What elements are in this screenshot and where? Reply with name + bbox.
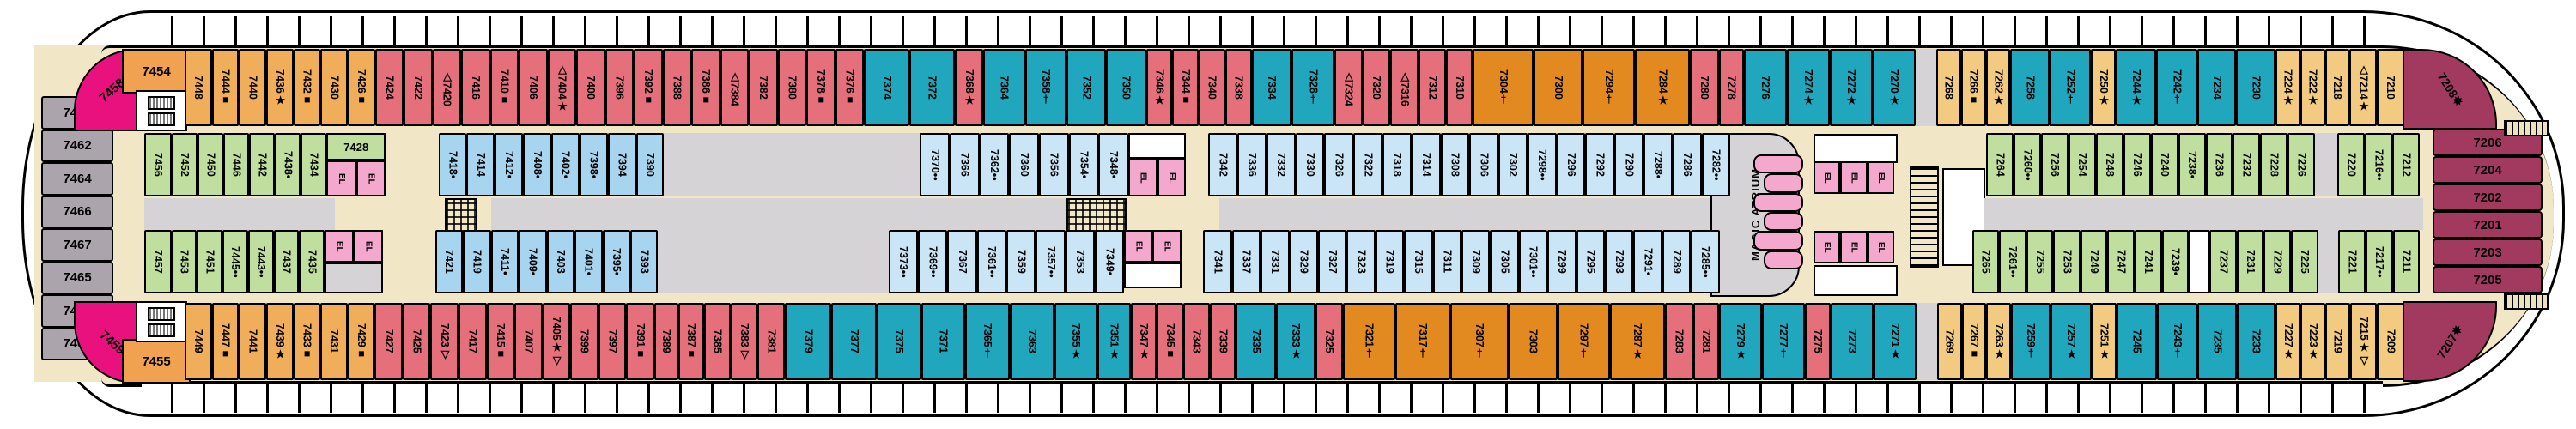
cabin-7280: 7280 xyxy=(1690,49,1719,126)
elevator-icon xyxy=(148,323,175,337)
cabin-7390: 7390 xyxy=(636,133,665,196)
cabin-7336: 7336 xyxy=(1237,133,1267,196)
cabin-7379: 7379 xyxy=(785,303,831,380)
cabin-7353: 7353 xyxy=(1066,230,1095,293)
corridor xyxy=(491,198,1066,230)
cabin-7367: 7367 xyxy=(947,230,976,293)
cabin-7361: 7361•• xyxy=(977,230,1006,293)
elevator-pair: ELEL xyxy=(1128,159,1186,196)
band-top-inner: 745674527450744674427438•74347428ELEL741… xyxy=(144,133,2420,196)
public-space xyxy=(2315,133,2337,196)
cabin-7423: 7423▽ xyxy=(430,303,459,380)
cabin-7384: △7384 xyxy=(720,49,750,126)
cabin-7365: 7365† xyxy=(965,303,1010,380)
cabin-7287: 7287★ xyxy=(1610,303,1665,380)
cabin-7347: 7347★ xyxy=(1131,303,1157,380)
cabin-7278: 7278 xyxy=(1719,49,1745,126)
cabin-7388: 7388 xyxy=(663,49,692,126)
cabin-7378: 7378■ xyxy=(806,49,835,126)
cabin-7420: △7420 xyxy=(433,49,462,126)
cabin-7355: 7355★ xyxy=(1054,303,1097,380)
cabin-7223: 7223★ xyxy=(2300,303,2325,380)
cabin-7293: 7293 xyxy=(1605,230,1633,293)
cabin-7281: 7281 xyxy=(1693,303,1719,380)
public-space xyxy=(658,230,888,293)
cabin-7248: 7248 xyxy=(2096,133,2123,196)
cabin-7349: 7349• xyxy=(1095,230,1124,293)
cabin-7324: △7324 xyxy=(1334,49,1363,126)
cabin-7341: 7341 xyxy=(1203,230,1231,293)
cabin-7265: 7265 xyxy=(1972,230,2000,293)
cabin-7394: 7394 xyxy=(608,133,636,196)
cabin-7456: 7456 xyxy=(144,133,172,196)
cabin-7416: 7416 xyxy=(461,49,490,126)
cabin-7214: △7214★ xyxy=(2349,49,2377,126)
cabin-7246: 7246 xyxy=(2123,133,2151,196)
cabin-7241: 7241 xyxy=(2135,230,2162,293)
cabin-7431: 7431 xyxy=(320,303,348,380)
public-room xyxy=(325,263,383,293)
cabin-7279: 7279★ xyxy=(1719,303,1762,380)
cabin-7337: 7337 xyxy=(1232,230,1261,293)
corridor xyxy=(1123,198,1219,230)
cabin-7409: 7409• xyxy=(519,230,546,293)
elevator-icon xyxy=(148,307,175,321)
cabin-7332: 7332 xyxy=(1267,133,1296,196)
cabin-7266: 7266■ xyxy=(1961,49,1986,126)
cabin-7445: 7445•• xyxy=(222,230,248,293)
elevator-block: ELEL xyxy=(325,230,383,293)
cabin-7238: 7238• xyxy=(2178,133,2206,196)
cabin-7376: 7376■ xyxy=(835,49,865,126)
cabin-7296: 7296 xyxy=(1557,133,1586,196)
cabin-7427: 7427 xyxy=(374,303,403,380)
cabin-7251: 7251★ xyxy=(2092,303,2117,380)
cabin-7274: 7274★ xyxy=(1787,49,1830,126)
band-top-outer: 74487444■74407436★7432■74307426■74247422… xyxy=(185,49,2404,126)
cabin-7331: 7331 xyxy=(1261,230,1289,293)
cabin-7330: 7330 xyxy=(1296,133,1325,196)
cabin-7288: 7288• xyxy=(1643,133,1673,196)
cabin-7310: 7310 xyxy=(1446,49,1473,126)
elevator-pair: ELEL xyxy=(325,230,383,263)
cabin-7263: 7263★ xyxy=(1986,303,2011,380)
cabin-7435: 7435 xyxy=(299,230,325,293)
cabin-7444: 7444■ xyxy=(212,49,240,126)
cabin-7383: 7383▽ xyxy=(731,303,757,380)
band-bottom-outer: 74497447■74417439★7433■74317429■74277425… xyxy=(185,303,2404,380)
cabin-7351: 7351★ xyxy=(1097,303,1131,380)
cabin-7402: 7402• xyxy=(551,133,580,196)
cabin-7453: 7453 xyxy=(172,230,197,293)
corridor xyxy=(1219,198,1710,230)
elevator: EL xyxy=(1128,159,1157,196)
cabin-7385: 7385 xyxy=(704,303,732,380)
cabin-7314: 7314 xyxy=(1412,133,1441,196)
cabin-7215: 7215★▽ xyxy=(2350,303,2378,380)
cabin-7318: 7318 xyxy=(1382,133,1412,196)
public-room xyxy=(1124,263,1181,288)
cabin-7334: 7334 xyxy=(1252,49,1291,126)
elevator-block: ELEL xyxy=(1124,230,1181,293)
cabin-7372: 7372 xyxy=(909,49,955,126)
corridor xyxy=(474,198,491,230)
cabin-7305: 7305 xyxy=(1490,230,1518,293)
corridor xyxy=(144,198,335,230)
cabin-7245: 7245 xyxy=(2117,303,2157,380)
band-bottom-inner: 7457745374517445••7443••74377435ELEL7421… xyxy=(144,230,2420,293)
cabin-7264: 7264 xyxy=(1986,133,2014,196)
cabin-7386: 7386■ xyxy=(691,49,720,126)
cabin-7442: 7442 xyxy=(249,133,275,196)
cabin-7221: 7221 xyxy=(2338,230,2366,293)
cabin-7319: 7319 xyxy=(1376,230,1404,293)
cabin-7433: 7433■ xyxy=(294,303,321,380)
cabin-7209: 7209 xyxy=(2377,303,2404,380)
cabin-7267: 7267■ xyxy=(1962,303,1987,380)
cabin-7438: 7438• xyxy=(275,133,301,196)
elevator-pair: ELEL xyxy=(1124,230,1181,263)
cabin-7231: 7231 xyxy=(2237,230,2264,293)
atrium-scallop xyxy=(1764,212,1803,231)
cabin-7450: 7450 xyxy=(197,133,223,196)
cabin-7407: 7407 xyxy=(514,303,543,380)
cabin-7244: 7244★ xyxy=(2116,49,2156,126)
cabin-7260: 7260•• xyxy=(2014,133,2041,196)
cabin-7225: 7225 xyxy=(2291,230,2318,293)
cabin-7226: 7226 xyxy=(2287,133,2315,196)
cabin-7437: 7437 xyxy=(274,230,300,293)
cabin-7335: 7335 xyxy=(1236,303,1275,380)
cabin-7218: 7218 xyxy=(2325,49,2350,126)
cabin-7224: 7224★ xyxy=(2275,49,2300,126)
cabin-7235: 7235 xyxy=(2197,303,2236,380)
cabin-7250: 7250★ xyxy=(2091,49,2116,126)
cabin-7440: 7440 xyxy=(239,49,266,126)
elevator: EL xyxy=(326,160,355,196)
elevator: EL xyxy=(1157,159,1187,196)
cabin-7371: 7371 xyxy=(921,303,965,380)
gangway-icon xyxy=(2504,293,2549,310)
public-space xyxy=(2318,230,2339,293)
cabin-7243: 7243† xyxy=(2157,303,2197,380)
cabin-7428: 7428 xyxy=(326,133,386,160)
stairs-icon xyxy=(445,198,477,233)
cabin-7425: 7425 xyxy=(403,303,431,380)
cabin-7406: 7406 xyxy=(519,49,548,126)
stairs-icon xyxy=(1066,198,1127,233)
cabin-7441: 7441 xyxy=(239,303,266,380)
cabin-7320: 7320 xyxy=(1363,49,1391,126)
cabin-7239: 7239• xyxy=(2162,230,2190,293)
cabin-7222: 7222★ xyxy=(2300,49,2325,126)
cabin-7212: 7212 xyxy=(2392,133,2420,196)
cabin-7307: 7307† xyxy=(1450,303,1509,380)
public-space xyxy=(664,133,920,196)
cabin-7358: 7358† xyxy=(1025,49,1066,126)
cabin-7309: 7309 xyxy=(1461,230,1490,293)
corridor-gap xyxy=(1730,133,1986,196)
cabin-7301: 7301•• xyxy=(1519,230,1547,293)
cabin-7348: 7348• xyxy=(1098,133,1128,196)
cabin-7439: 7439★ xyxy=(266,303,294,380)
cabin-7343: 7343 xyxy=(1183,303,1210,380)
cabin-7373: 7373•• xyxy=(889,230,918,293)
cabin-7202: 7202 xyxy=(2433,184,2543,211)
cabin-7210: 7210 xyxy=(2377,49,2404,126)
cabin-7216: 7216•• xyxy=(2365,133,2392,196)
cabin-label: 7207✸ xyxy=(2433,322,2465,360)
cabin-7446: 7446 xyxy=(223,133,249,196)
cabin-7381: 7381 xyxy=(757,303,786,380)
cabin-7395: 7395• xyxy=(603,230,630,293)
cabin-7424: 7424 xyxy=(375,49,404,126)
cabin-7338: 7338 xyxy=(1225,49,1252,126)
cabin-7346: 7346★ xyxy=(1146,49,1173,126)
cabin-7430: 7430 xyxy=(320,49,348,126)
cabin-7211: 7211 xyxy=(2393,230,2421,293)
cabin-7289: 7289 xyxy=(1662,230,1691,293)
cabin-7389: 7389 xyxy=(654,303,678,380)
elevator-block: ELEL xyxy=(1128,133,1186,196)
cabin-7410: 7410■ xyxy=(490,49,519,126)
cabin-7308: 7308 xyxy=(1441,133,1470,196)
cabin-7377: 7377 xyxy=(831,303,877,380)
cabin-7421: 7421 xyxy=(435,230,463,293)
elevator-block: 7428ELEL xyxy=(326,133,386,196)
cabin-7405: 7405★▽ xyxy=(543,303,571,380)
corridor-gap xyxy=(1186,133,1208,196)
corridor-gap xyxy=(2189,230,2209,293)
cabin-7261: 7261•• xyxy=(1999,230,2026,293)
cabin-7255: 7255 xyxy=(2026,230,2054,293)
cabin-7455: 7455 xyxy=(122,339,191,384)
cabin-7258: 7258 xyxy=(2010,49,2049,126)
elevator-icon xyxy=(148,112,175,126)
lifeboat-ticks-top xyxy=(142,16,2383,48)
cabin-7369: 7369•• xyxy=(918,230,947,293)
cabin-7237: 7237 xyxy=(2209,230,2237,293)
cabin-7465: 7465 xyxy=(41,262,113,295)
cabin-7397: 7397 xyxy=(598,303,627,380)
cabin-7414: 7414 xyxy=(466,133,495,196)
cabin-7329: 7329 xyxy=(1290,230,1318,293)
public-space xyxy=(1917,303,1937,380)
corridor xyxy=(1984,198,2423,230)
cabin-7230: 7230 xyxy=(2236,49,2275,126)
cabin-7325: 7325 xyxy=(1315,303,1343,380)
cabin-7340: 7340 xyxy=(1199,49,1225,126)
cabin-7316: △7316 xyxy=(1390,49,1419,126)
cabin-7257: 7257★ xyxy=(2050,303,2092,380)
cabin-7415: 7415■ xyxy=(487,303,515,380)
cabin-7333: 7333★ xyxy=(1276,303,1315,380)
cabin-7277: 7277† xyxy=(1762,303,1805,380)
cabin-7240: 7240 xyxy=(2151,133,2178,196)
cabin-label: 7208✸ xyxy=(2433,69,2465,108)
elevator-icon xyxy=(148,96,175,110)
gangway-icon xyxy=(2504,120,2549,136)
cabin-7382: 7382 xyxy=(749,49,778,126)
cabin-7418: 7418• xyxy=(439,133,467,196)
cabin-7229: 7229 xyxy=(2263,230,2291,293)
cabin-7321: 7321† xyxy=(1343,303,1395,380)
cabin-7391: 7391■ xyxy=(626,303,654,380)
cabin-7339: 7339 xyxy=(1210,303,1236,380)
cabin-7350: 7350 xyxy=(1106,49,1145,126)
lifeboat-ticks-bottom xyxy=(142,381,2383,413)
public-space xyxy=(1916,49,1936,126)
cabin-7284: 7284★ xyxy=(1635,49,1690,126)
cabin-7291: 7291• xyxy=(1633,230,1662,293)
cabin-7259: 7259† xyxy=(2011,303,2050,380)
cabin-7363: 7363 xyxy=(1010,303,1054,380)
cabin-7360: 7360 xyxy=(1009,133,1039,196)
cabin-7322: 7322 xyxy=(1353,133,1382,196)
cabin-7375: 7375 xyxy=(877,303,921,380)
elevator-icon-box xyxy=(136,301,187,342)
cabin-7323: 7323 xyxy=(1346,230,1375,293)
cabin-7227: 7227★ xyxy=(2275,303,2300,380)
cabin-7312: 7312 xyxy=(1419,49,1447,126)
cabin-7429: 7429■ xyxy=(348,303,375,380)
cabin-7352: 7352 xyxy=(1066,49,1106,126)
cabin-7408: 7408• xyxy=(523,133,551,196)
cabin-7295: 7295 xyxy=(1577,230,1605,293)
cabin-7426: 7426■ xyxy=(348,49,375,126)
corridor xyxy=(335,198,445,230)
cabin-7303: 7303 xyxy=(1509,303,1557,380)
cabin-7403: 7403 xyxy=(547,230,574,293)
cabin-7419: 7419 xyxy=(463,230,490,293)
cabin-7298: 7298•• xyxy=(1528,133,1557,196)
corridor-gap xyxy=(383,230,435,293)
cabin-7201: 7201 xyxy=(2433,211,2543,239)
cabin-7451: 7451 xyxy=(197,230,222,293)
cabin-label: 7454 xyxy=(142,64,170,79)
cabin-7467: 7467 xyxy=(41,228,113,262)
cabin-7254: 7254 xyxy=(2069,133,2096,196)
cabin-7315: 7315 xyxy=(1404,230,1432,293)
elevator: EL xyxy=(356,160,386,196)
cabin-7401: 7401• xyxy=(574,230,602,293)
cabin-7219: 7219 xyxy=(2325,303,2350,380)
cabin-7357: 7357•• xyxy=(1036,230,1065,293)
cabin-7345: 7345■ xyxy=(1157,303,1183,380)
cabin-7311: 7311 xyxy=(1433,230,1461,293)
cabin-7447: 7447■ xyxy=(212,303,240,380)
cabin-7368: 7368★ xyxy=(955,49,984,126)
cabin-7466: 7466 xyxy=(41,196,113,229)
cabin-7366: 7366 xyxy=(950,133,980,196)
elevator: EL xyxy=(1152,230,1181,263)
cabin-7262: 7262★ xyxy=(1986,49,2011,126)
cabin-7374: 7374 xyxy=(864,49,909,126)
cabin-label: 7455 xyxy=(142,354,170,369)
cabin-7399: 7399 xyxy=(570,303,598,380)
cabin-7304: 7304† xyxy=(1473,49,1534,126)
elevator-icon-box xyxy=(136,90,187,131)
corridor-gap xyxy=(1720,230,1972,293)
cabin-7434: 7434 xyxy=(301,133,326,196)
cabin-7404: △7404★ xyxy=(548,49,577,126)
cabin-7269: 7269 xyxy=(1937,303,1962,380)
cabin-7273: 7273 xyxy=(1831,303,1874,380)
cabin-7294: 7294† xyxy=(1583,49,1635,126)
cabin-7448: 7448 xyxy=(185,49,212,126)
cabin-7203: 7203 xyxy=(2433,239,2543,266)
elevator: EL xyxy=(354,230,383,263)
cabin-7247: 7247 xyxy=(2107,230,2135,293)
cabin-7411: 7411• xyxy=(491,230,519,293)
cabin-7220: 7220 xyxy=(2337,133,2365,196)
cabin-7290: 7290 xyxy=(1614,133,1643,196)
cabin-7302: 7302 xyxy=(1498,133,1528,196)
cabin-7233: 7233 xyxy=(2237,303,2275,380)
cabin-7326: 7326 xyxy=(1324,133,1353,196)
elevator: EL xyxy=(1124,230,1152,263)
cabin-7283: 7283 xyxy=(1665,303,1693,380)
cabin-7297: 7297† xyxy=(1558,303,1610,380)
cabin-7449: 7449 xyxy=(185,303,212,380)
cabin-7436: 7436★ xyxy=(266,49,294,126)
cabin-7354: 7354• xyxy=(1069,133,1099,196)
cabin-7328: 7328† xyxy=(1291,49,1334,126)
cabin-7270: 7270★ xyxy=(1873,49,1916,126)
cabin-7292: 7292 xyxy=(1585,133,1614,196)
cabin-7306: 7306 xyxy=(1469,133,1498,196)
cabin-7234: 7234 xyxy=(2197,49,2236,126)
cabin-7271: 7271★ xyxy=(1874,303,1917,380)
cabin-7342: 7342 xyxy=(1208,133,1237,196)
public-room xyxy=(1128,133,1186,159)
cabin-7242: 7242† xyxy=(2156,49,2196,126)
cabin-7217: 7217•• xyxy=(2366,230,2393,293)
cabin-7464: 7464 xyxy=(41,162,113,196)
elevator-pair: ELEL xyxy=(326,160,386,196)
cabin-7327: 7327 xyxy=(1318,230,1346,293)
cabin-7275: 7275 xyxy=(1805,303,1831,380)
cabin-7232: 7232 xyxy=(2233,133,2260,196)
cabin-7286: 7286 xyxy=(1673,133,1702,196)
cabin-7457: 7457 xyxy=(144,230,172,293)
cabin-7272: 7272★ xyxy=(1830,49,1873,126)
cabin-7362: 7362•• xyxy=(980,133,1010,196)
cabin-7299: 7299 xyxy=(1547,230,1576,293)
cabin-7228: 7228 xyxy=(2260,133,2287,196)
cabin-7393: 7393 xyxy=(630,230,658,293)
cabin-7268: 7268 xyxy=(1936,49,1961,126)
cabin-7253: 7253 xyxy=(2053,230,2081,293)
cabin-7300: 7300 xyxy=(1534,49,1583,126)
cabin-7204: 7204 xyxy=(2433,156,2543,184)
cabin-7364: 7364 xyxy=(983,49,1024,126)
corridor-gap xyxy=(386,133,438,196)
cabin-7282: 7282•• xyxy=(1702,133,1731,196)
cabin-7387: 7387■ xyxy=(678,303,704,380)
cabin-7432: 7432■ xyxy=(294,49,321,126)
deck-plan: 74607462746474667467746574637461 7458 74… xyxy=(0,0,2576,429)
corridor-gap xyxy=(1182,230,1204,293)
bow-cabin-stack: 720672047202720172037205 xyxy=(2433,129,2543,293)
cabin-7443: 7443•• xyxy=(248,230,274,293)
cabin-7205: 7205 xyxy=(2433,266,2543,293)
cabin-7392: 7392■ xyxy=(634,49,663,126)
cabin-7276: 7276 xyxy=(1744,49,1786,126)
cabin-7249: 7249 xyxy=(2081,230,2108,293)
cabin-7422: 7422 xyxy=(404,49,433,126)
cabin-7396: 7396 xyxy=(605,49,635,126)
